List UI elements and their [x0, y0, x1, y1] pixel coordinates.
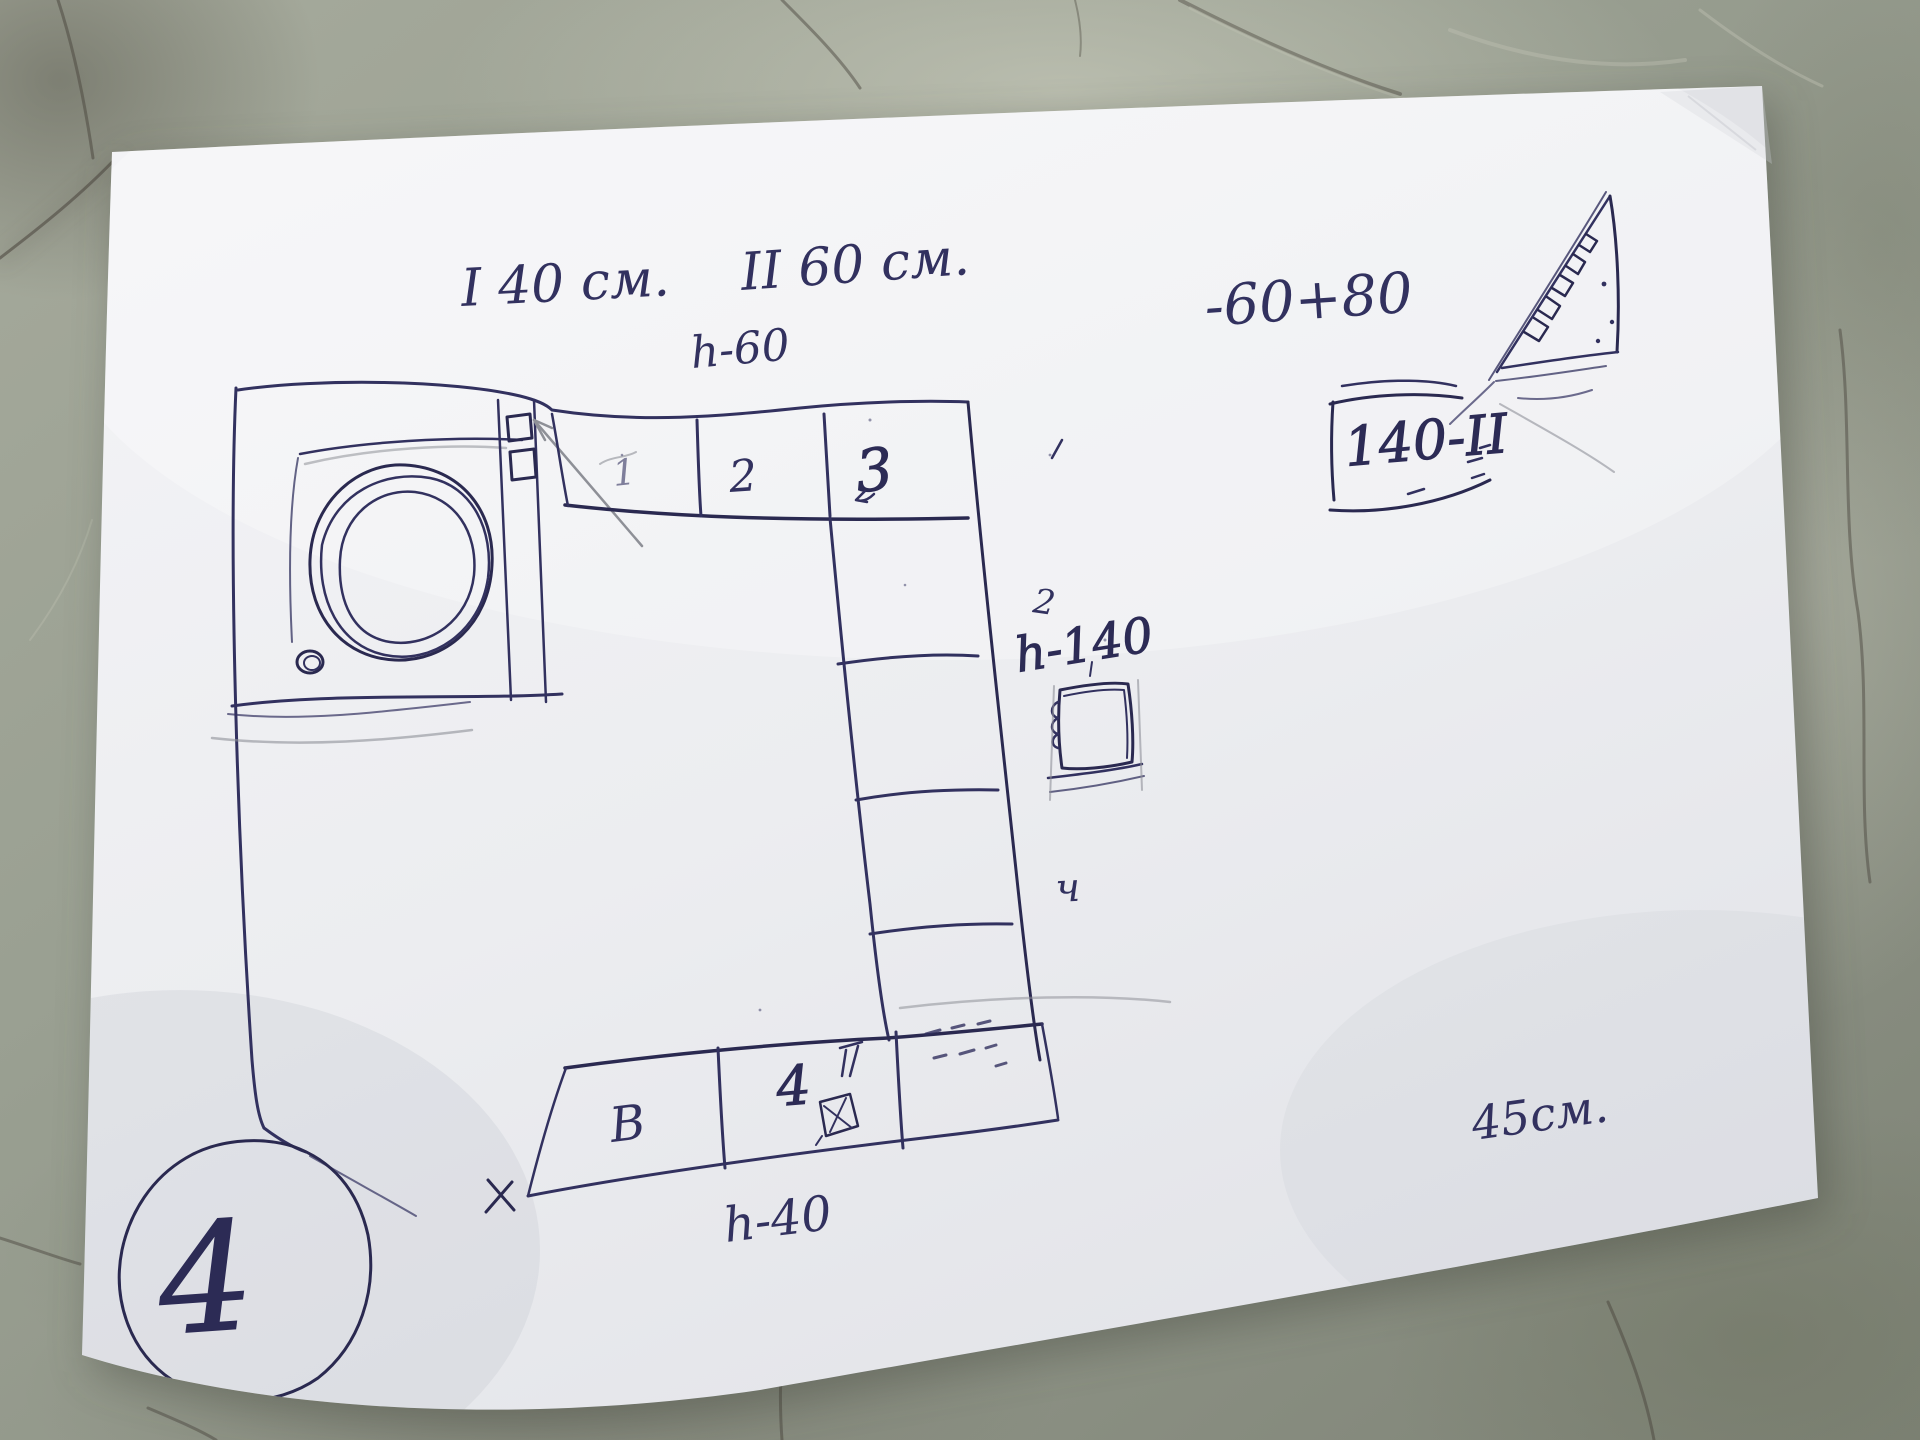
bottom-cell-2-label: 4	[773, 1053, 814, 1119]
photo-of-hand-drawn-plan: I 40 см. II 60 см. -60+80	[0, 0, 1920, 1440]
bottom-cell-1-label: В	[606, 1094, 649, 1154]
legend-item-1: I 40 см.	[459, 248, 671, 319]
top-cell-1-label: 1	[611, 452, 638, 495]
letter-mark: ч	[1054, 865, 1081, 912]
page-number: 4	[151, 1190, 259, 1370]
top-cell-2-label: 2	[726, 450, 758, 503]
paper-sheet	[0, 0, 1920, 1440]
top-band-height-label: h-60	[689, 320, 792, 379]
